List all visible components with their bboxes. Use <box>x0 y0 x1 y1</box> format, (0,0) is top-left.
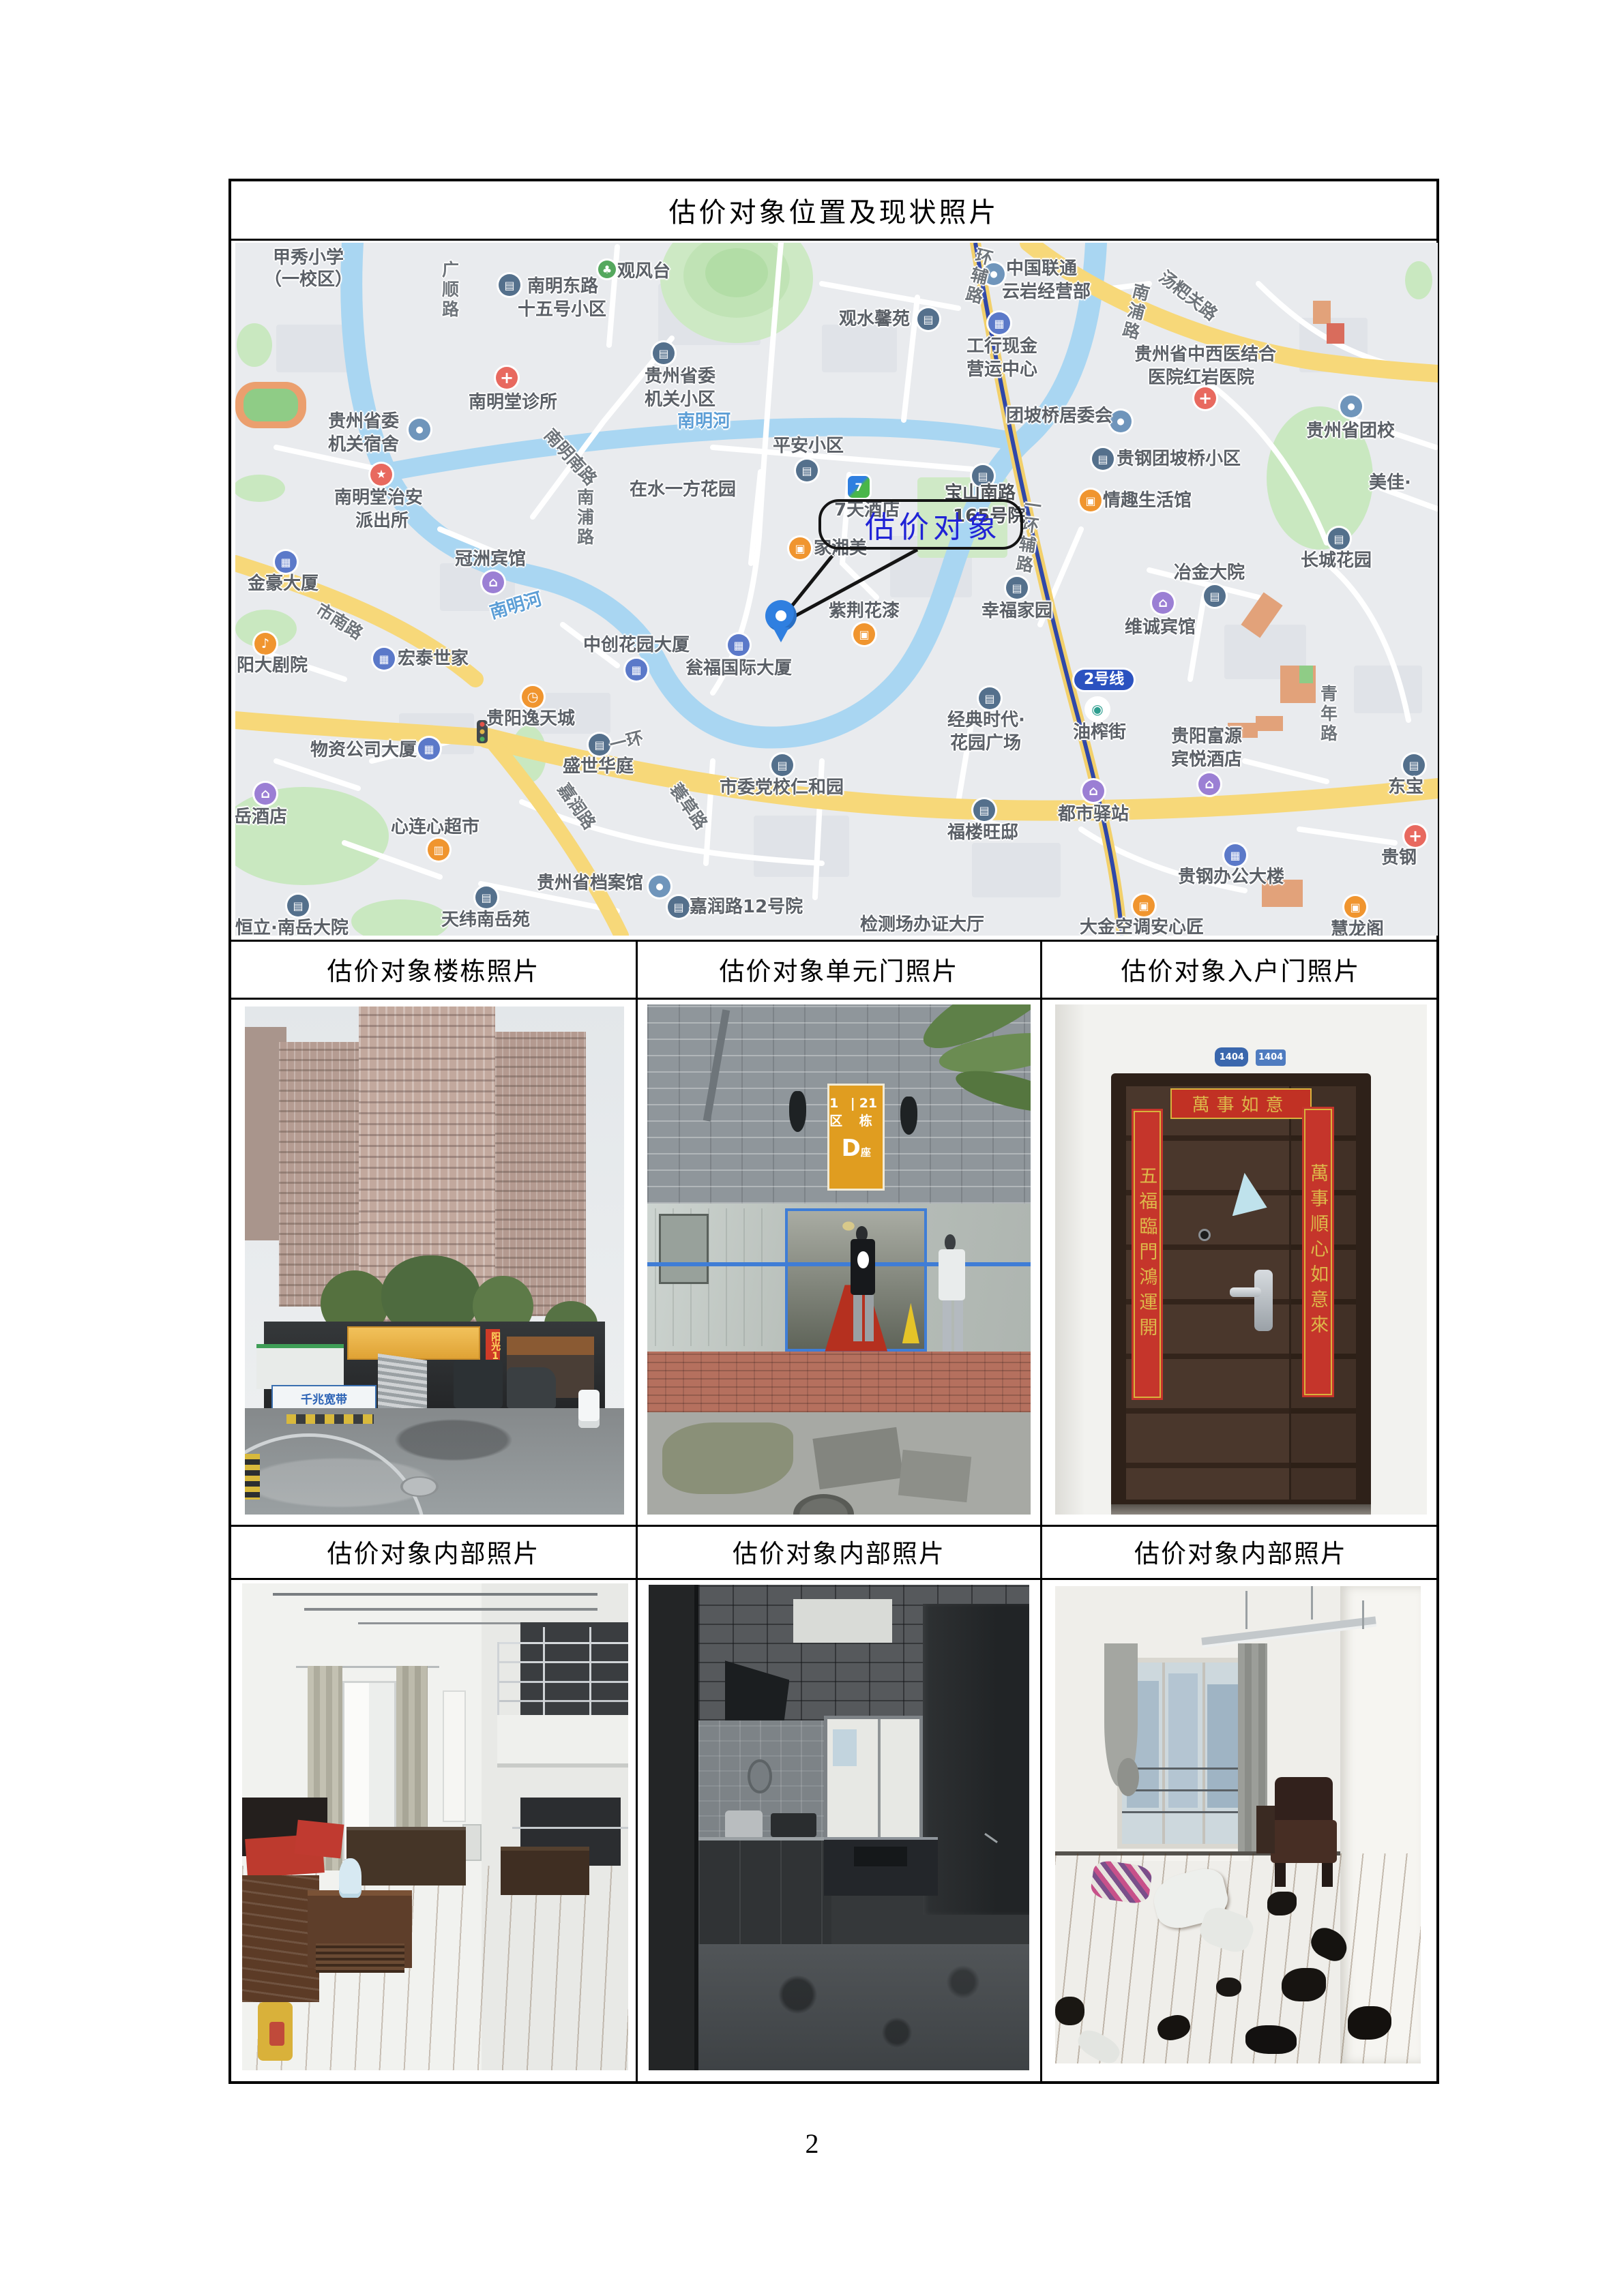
map-label: 盛世华庭 <box>563 757 634 777</box>
couplet-right: 萬事順心如意來 <box>1302 1107 1333 1397</box>
map-label: 中国联通 <box>1006 259 1077 279</box>
map-label: 一环 <box>608 728 645 755</box>
map-label: 南明堂诊所 <box>469 393 557 413</box>
door-handle <box>1230 1287 1261 1296</box>
map-label: 机关小区 <box>645 390 715 410</box>
table-shelf <box>316 1943 404 1973</box>
res-icon <box>499 274 520 296</box>
map-label: 瓮福国际大厦 <box>685 659 792 679</box>
ceiling-light-panel <box>793 1599 892 1643</box>
speed-bump <box>286 1414 374 1423</box>
wall-lamp <box>900 1097 917 1135</box>
map-label: 团坡桥居委会 <box>1006 406 1112 426</box>
subject-callout: 估价对象 <box>818 499 1023 550</box>
door-plate-right: 1404 <box>1256 1049 1286 1066</box>
couplet-left: 五福臨門鴻運開 <box>1132 1109 1163 1399</box>
res-icon <box>1006 577 1028 599</box>
map-label: 贵钢 <box>1381 848 1417 868</box>
map-label: 广顺路 <box>440 260 459 320</box>
map-label: 都市驿站 <box>1058 805 1129 824</box>
map-label: 冠洲宾馆 <box>455 550 526 569</box>
hotel-icon <box>482 571 504 593</box>
person-white-shirt <box>939 1249 965 1300</box>
door-lock <box>1254 1270 1273 1331</box>
mezzanine-parapet <box>497 1715 628 1763</box>
map-label: 观水馨苑 <box>839 310 910 329</box>
map-label-layer: 甲秀小学（一校区）广顺路南明东路十五号小区观风台观水馨苑中国联通云岩经营部工行现… <box>235 243 1438 936</box>
res-icon <box>1328 528 1350 550</box>
divider <box>1040 940 1042 2084</box>
map-label: 云岩经营部 <box>1002 282 1091 302</box>
photo-building-exterior: 阳光100幼儿园 千兆宽带 <box>245 1007 624 1515</box>
map-label: 南明东路 <box>527 277 598 297</box>
map-label: 青年路 <box>1318 685 1338 744</box>
map-label: 油榨街 <box>1073 723 1126 743</box>
pin2-icon <box>1340 396 1362 417</box>
seven-icon <box>848 476 870 498</box>
map-label: 中创花园大厦 <box>583 636 690 655</box>
res-icon <box>1403 754 1425 776</box>
map-label: 医院红岩医院 <box>1148 368 1254 388</box>
map-label: 派出所 <box>355 511 409 531</box>
res-icon <box>771 754 793 776</box>
map-label: 甲秀小学 <box>273 248 344 268</box>
kitchen-floor <box>698 1944 1029 2070</box>
window <box>824 1716 923 1847</box>
window-right <box>443 1690 466 1822</box>
map-label: 2号线 <box>1074 670 1134 690</box>
res-icon <box>475 886 497 908</box>
stairs <box>378 1354 427 1416</box>
map-label: 蓑草路 <box>666 780 711 833</box>
divider <box>231 998 1436 1000</box>
pin2-icon <box>1110 411 1132 432</box>
subject-callout-label: 估价对象 <box>865 503 1001 546</box>
shop-icon <box>789 537 811 559</box>
door-edge <box>649 1585 698 2070</box>
pin2-icon <box>409 419 430 441</box>
map-label: 南浦路 <box>1119 281 1151 343</box>
map-label: 贵钢办公大楼 <box>1178 867 1284 887</box>
cart-icon <box>428 839 449 861</box>
zone-label: 1区 <box>829 1096 846 1129</box>
res-icon <box>1092 448 1114 470</box>
map-label: 长城花园 <box>1301 551 1372 571</box>
res-icon <box>653 342 675 364</box>
map-label: 恒立·南岳大院 <box>235 919 349 936</box>
cooktop <box>771 1813 816 1838</box>
map-label: 宏泰世家 <box>398 649 469 669</box>
photo-entry-door: 1404 1404 萬事如意 五福臨門鴻運開 萬事順心如意來 <box>1055 1004 1427 1515</box>
mezzanine-opening <box>520 1622 628 1729</box>
clock-icon <box>522 686 544 708</box>
col-header-interior-2: 估价对象内部照片 <box>638 1525 1040 1578</box>
map-label: 幸福家园 <box>981 601 1052 621</box>
col-header-interior-1: 估价对象内部照片 <box>231 1525 636 1578</box>
map-label: 机关宿舍 <box>328 435 399 455</box>
map-label: 在水一方花园 <box>630 480 736 500</box>
map-label: 宾悦酒店 <box>1171 750 1242 770</box>
map-label: 汤粑关路 <box>1155 267 1221 324</box>
building-no-label: 21栋 <box>859 1096 883 1129</box>
hotel-icon <box>1198 773 1220 795</box>
map-label: 物资公司大厦 <box>310 741 417 760</box>
shop-icon <box>853 623 875 645</box>
pin2-icon <box>649 876 670 897</box>
hosp-icon <box>1194 387 1216 409</box>
hotel-icon <box>1082 780 1104 802</box>
peephole <box>1198 1229 1211 1241</box>
long-cabinet <box>346 1827 466 1885</box>
map-label: 嘉润路 <box>554 780 599 833</box>
photo-interior-room <box>1055 1586 1421 2063</box>
police-icon <box>370 464 392 486</box>
res-icon <box>917 308 939 330</box>
hosp-icon <box>496 367 518 389</box>
map-label: 情趣生活馆 <box>1103 491 1192 511</box>
map-label: 贵钢团坡桥小区 <box>1117 449 1241 469</box>
photo-interior-living <box>242 1583 628 2070</box>
map-label: 金豪大厦 <box>248 574 319 594</box>
hotel-icon <box>254 783 276 805</box>
map-label: 慧龙阁 <box>1331 920 1384 936</box>
biz-icon <box>728 634 750 656</box>
map-label: 贵州省档案馆 <box>537 874 643 893</box>
map-label: 嘉润路12号院 <box>690 897 803 917</box>
col-header-building: 估价对象楼栋照片 <box>231 940 636 998</box>
door-plate-left: 1404 <box>1215 1047 1248 1067</box>
res-icon <box>1204 585 1226 607</box>
park-icon <box>598 260 616 278</box>
map-label: 平安小区 <box>773 436 844 456</box>
shop-icon <box>1344 896 1366 918</box>
sink <box>854 1847 907 1866</box>
music-icon <box>254 633 276 655</box>
map-label: 南明南路 <box>541 426 600 489</box>
side-table <box>1256 1806 1275 1853</box>
divider <box>231 1578 1436 1580</box>
map-label: 维诚宾馆 <box>1125 618 1196 638</box>
biz-icon <box>1224 844 1246 866</box>
res-icon <box>979 687 1001 709</box>
res-icon <box>796 460 818 481</box>
subject-location-pin-icon <box>765 600 797 631</box>
shop-icon <box>1080 490 1102 511</box>
bollard <box>245 1454 260 1500</box>
map-label: 贵阳逸天城 <box>486 709 575 729</box>
door-banner: 萬事如意 <box>1170 1088 1312 1119</box>
report-page: 估价对象位置及现状照片 <box>0 0 1624 2296</box>
map-label: 贵州省委 <box>328 412 399 432</box>
tall-cabinet <box>923 1604 1029 1915</box>
map-label: 工行现金 <box>966 337 1037 357</box>
page-number: 2 <box>0 2128 1624 2160</box>
res-icon <box>589 734 610 756</box>
sofa-cushion <box>295 1819 344 1858</box>
biz-icon <box>988 312 1010 334</box>
divider <box>636 940 638 2084</box>
biz-icon <box>625 659 647 681</box>
map-label: 贵州省中西医结合 <box>1134 345 1276 365</box>
map-label: （一校区） <box>264 270 353 290</box>
map-label: 阳大剧院 <box>237 656 308 676</box>
counter-sink <box>824 1837 938 1895</box>
map-label: 经典时代· <box>947 711 1025 730</box>
map-label: 紫荆花漆 <box>829 601 900 621</box>
tape-line <box>647 1262 1031 1266</box>
building-number-sign: 1区| 21栋 D座 <box>827 1084 885 1191</box>
biz-icon <box>373 648 395 670</box>
biz-icon <box>275 551 297 573</box>
shop-icon <box>1133 895 1155 916</box>
map-label: 花园广场 <box>950 734 1021 754</box>
map-label: 市委党校仁和园 <box>720 778 844 798</box>
location-map: 甲秀小学（一校区）广顺路南明东路十五号小区观风台观水馨苑中国联通云岩经营部工行现… <box>235 243 1438 936</box>
scooter <box>507 1367 556 1408</box>
map-label: 南明河 <box>488 589 544 623</box>
map-label: 十五号小区 <box>518 300 606 320</box>
map-label: 大金空调安心匠 <box>1080 918 1204 936</box>
white-chair <box>578 1390 600 1428</box>
map-label: 贵州省委 <box>645 367 715 387</box>
map-label: 检测场办证大厅 <box>860 915 984 935</box>
broadband-banner: 千兆宽带 <box>271 1385 377 1411</box>
map-label: 贵阳富源 <box>1171 727 1242 747</box>
map-label: 贵州省团校 <box>1306 421 1395 441</box>
photo-interior-kitchen <box>649 1585 1029 2070</box>
map-label: 美佳· <box>1369 473 1411 493</box>
kiosk <box>256 1344 344 1389</box>
res-icon <box>668 896 690 918</box>
delivery-van <box>454 1360 503 1408</box>
tv-cabinet <box>501 1847 589 1895</box>
map-label: 福楼旺邸 <box>947 823 1018 843</box>
map-label: 观风台 <box>617 262 670 282</box>
map-label: 市南路 <box>312 600 366 643</box>
hosp-icon <box>1404 825 1426 847</box>
map-label: 南岳酒店 <box>235 807 287 827</box>
map-label: 冶金大院 <box>1174 563 1245 583</box>
col-header-unit-door: 估价对象单元门照片 <box>638 940 1040 998</box>
block-label: D <box>842 1135 861 1162</box>
col-header-interior-3: 估价对象内部照片 <box>1042 1525 1439 1578</box>
divider <box>231 239 1436 241</box>
map-label: 心连心超市 <box>391 818 479 837</box>
map-label: 东宝 <box>1388 777 1423 797</box>
table-title: 估价对象位置及现状照片 <box>231 181 1436 239</box>
res-icon <box>287 895 309 916</box>
rice-cooker <box>725 1810 763 1840</box>
biz-icon <box>418 738 440 760</box>
map-label: 南明河 <box>677 412 730 432</box>
glass-reflection <box>659 1214 709 1284</box>
map-label: 营运中心 <box>966 360 1037 380</box>
photo-unit-entrance: 1区| 21栋 D座 <box>647 1004 1031 1515</box>
water-jug <box>339 1858 362 1897</box>
mossy-pavement <box>662 1422 793 1494</box>
metro-icon <box>1087 698 1108 720</box>
manhole <box>400 1476 439 1497</box>
photo-table: 估价对象位置及现状照片 <box>228 179 1439 2084</box>
res-icon <box>973 799 995 821</box>
map-label: 南浦路 <box>575 488 594 548</box>
map-label: 南明堂治安 <box>334 488 423 508</box>
col-header-entry-door: 估价对象入户门照片 <box>1042 940 1439 998</box>
hotel-icon <box>1152 592 1174 614</box>
person-dark-shirt <box>851 1239 876 1295</box>
map-label: 天纬南岳苑 <box>441 910 530 930</box>
armchair-seat <box>1271 1820 1336 1863</box>
wall-lamp <box>789 1091 806 1132</box>
